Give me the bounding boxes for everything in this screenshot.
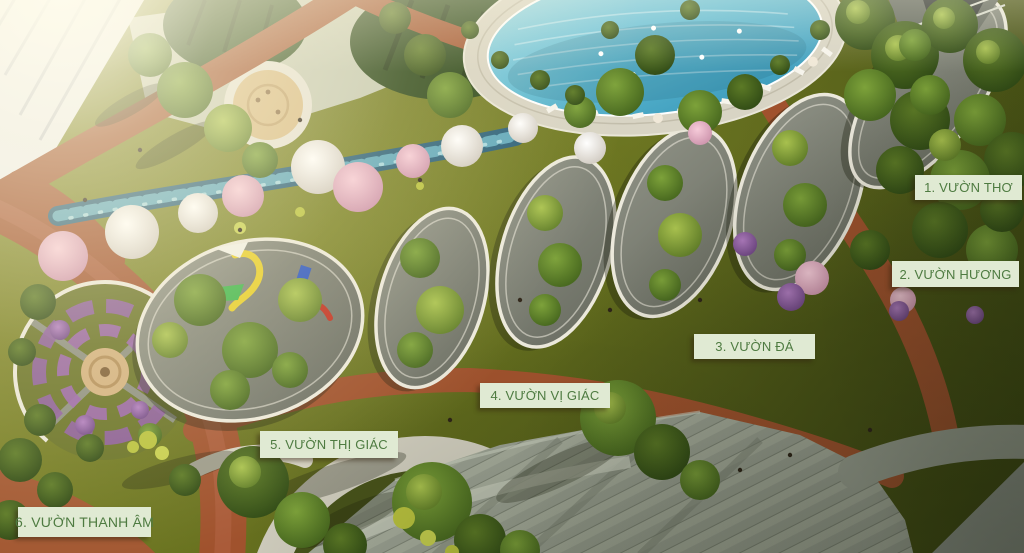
garden-label-tho: 1. VƯỜN THƠ xyxy=(915,175,1022,200)
garden-label-thanh-am: 6. VƯỜN THANH ÂM xyxy=(18,507,151,537)
garden-label-thi-giac: 5. VƯỜN THỊ GIÁC xyxy=(260,431,398,458)
garden-label-vi-giac: 4. VƯỜN VỊ GIÁC xyxy=(480,383,610,408)
garden-label-huong: 2. VƯỜN HƯƠNG xyxy=(892,261,1019,287)
park-illustration xyxy=(0,0,1024,553)
park-masterplan-render: 1. VƯỜN THƠ 2. VƯỜN HƯƠNG 3. VƯỜN ĐÁ 4. … xyxy=(0,0,1024,553)
garden-label-da: 3. VƯỜN ĐÁ xyxy=(694,334,815,359)
